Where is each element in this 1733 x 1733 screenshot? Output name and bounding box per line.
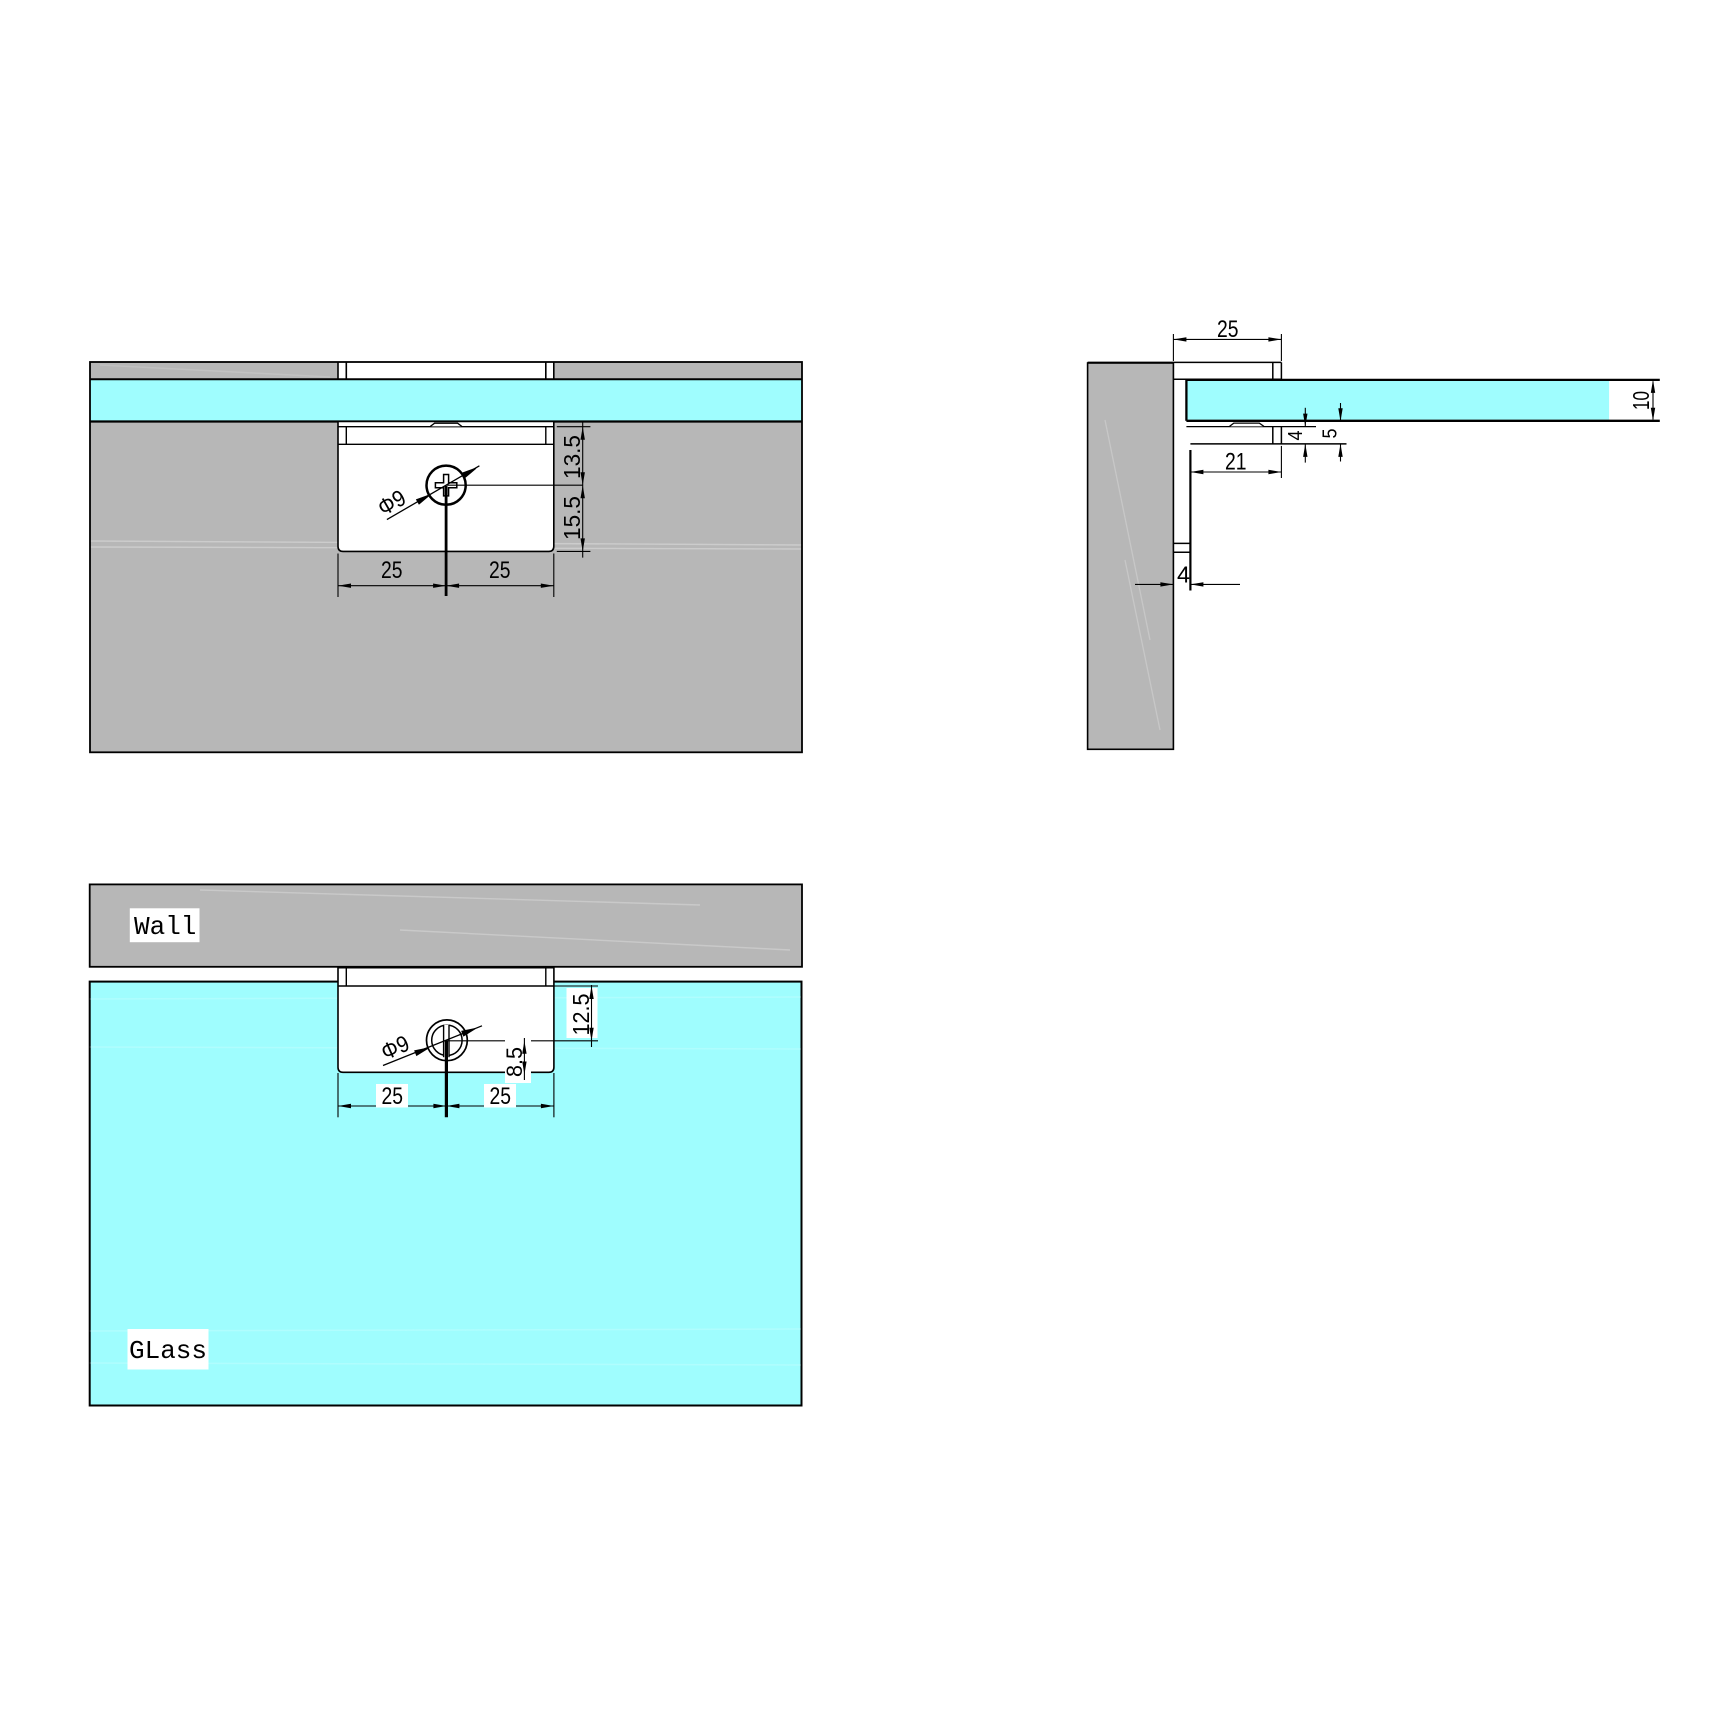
- svg-text:25: 25: [382, 1083, 404, 1110]
- svg-text:4: 4: [1177, 562, 1190, 588]
- svg-text:Wall: Wall: [134, 912, 196, 942]
- svg-text:25: 25: [490, 1083, 512, 1110]
- svg-text:21: 21: [1225, 449, 1247, 476]
- svg-text:GLass: GLass: [129, 1336, 207, 1366]
- svg-text:15.5: 15.5: [559, 496, 585, 540]
- svg-text:25: 25: [489, 557, 511, 584]
- svg-text:10: 10: [1628, 391, 1654, 410]
- svg-text:25: 25: [381, 557, 403, 584]
- svg-text:5: 5: [1319, 429, 1342, 439]
- svg-text:13.5: 13.5: [559, 435, 585, 479]
- svg-text:12.5: 12.5: [568, 994, 594, 1036]
- svg-text:4: 4: [1284, 431, 1307, 441]
- svg-text:8.5: 8.5: [502, 1047, 527, 1077]
- svg-text:25: 25: [1217, 316, 1239, 343]
